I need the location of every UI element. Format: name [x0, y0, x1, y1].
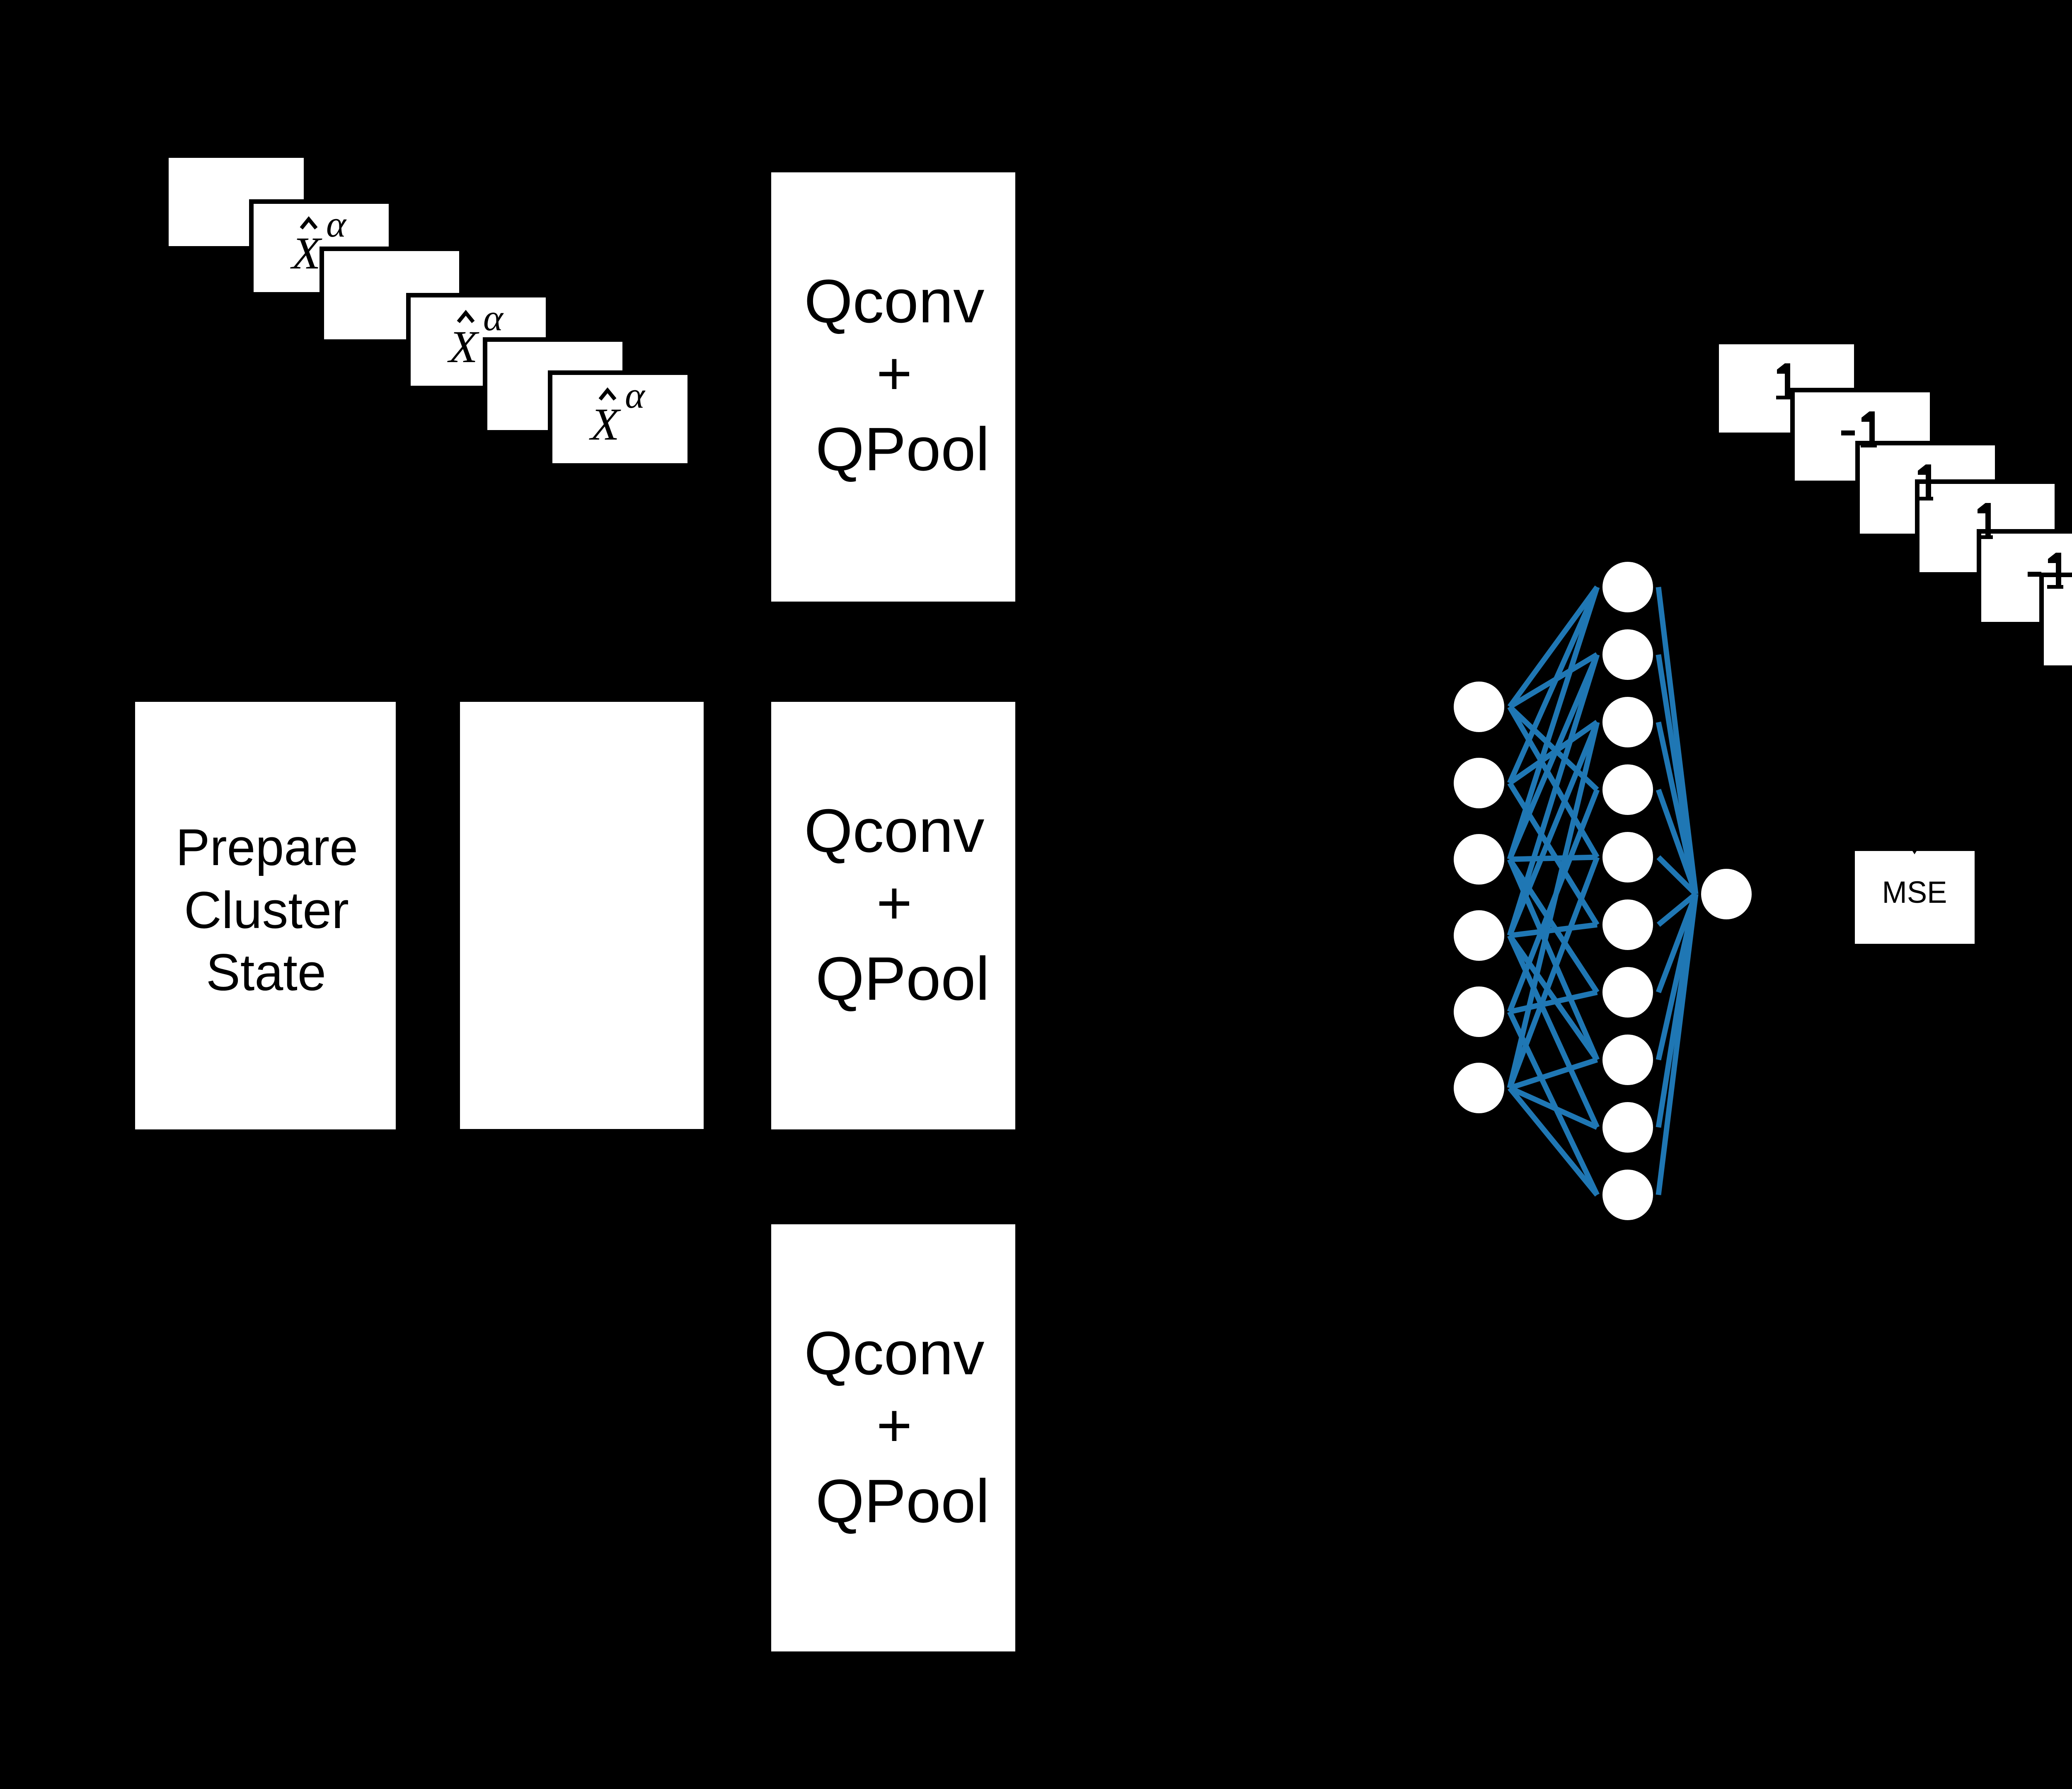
svg-text:MSE: MSE	[1882, 875, 1947, 909]
svg-text:State: State	[206, 944, 326, 1001]
svg-text:Qconv: Qconv	[804, 1319, 985, 1388]
svg-text:QPool: QPool	[816, 1467, 990, 1535]
svg-text:+: +	[876, 1391, 912, 1460]
svg-text:X: X	[447, 322, 479, 372]
svg-text:α: α	[625, 375, 646, 416]
svg-text:X: X	[589, 399, 621, 450]
svg-text:X: X	[290, 228, 322, 278]
svg-text:+: +	[876, 339, 912, 408]
svg-text:Qconv: Qconv	[804, 267, 985, 336]
svg-text:QPool: QPool	[816, 415, 990, 484]
svg-text:Cluster: Cluster	[184, 882, 349, 939]
svg-text:Qconv: Qconv	[804, 797, 985, 865]
svg-text:α: α	[326, 204, 347, 245]
svg-text:QPool: QPool	[816, 945, 990, 1013]
svg-text:α: α	[483, 297, 504, 338]
svg-text:Prepare: Prepare	[176, 819, 358, 876]
svg-text:+: +	[876, 869, 912, 937]
